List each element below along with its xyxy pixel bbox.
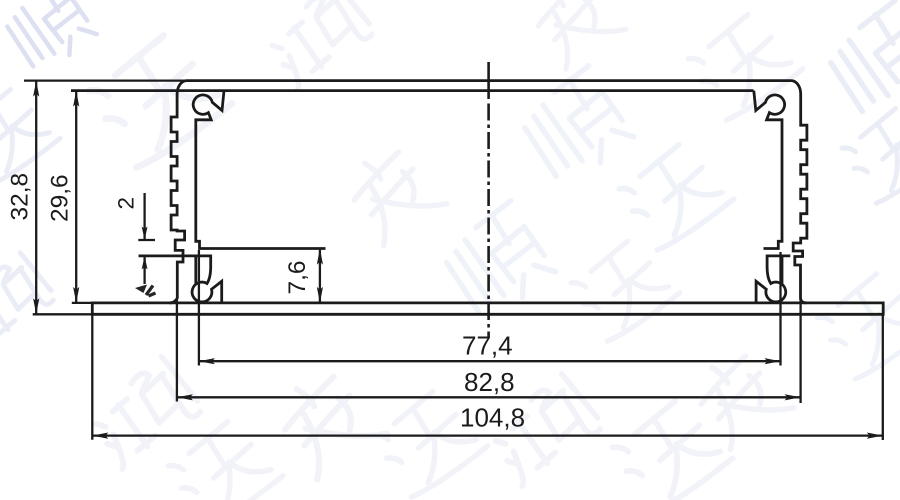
svg-text:29,6: 29,6 <box>47 174 74 222</box>
svg-text:32,8: 32,8 <box>7 173 34 221</box>
svg-text:82,8: 82,8 <box>464 367 515 397</box>
svg-text:2: 2 <box>114 197 139 210</box>
svg-text:7,6: 7,6 <box>284 260 311 294</box>
svg-text:104,8: 104,8 <box>460 403 525 433</box>
svg-text:77,4: 77,4 <box>462 331 513 361</box>
